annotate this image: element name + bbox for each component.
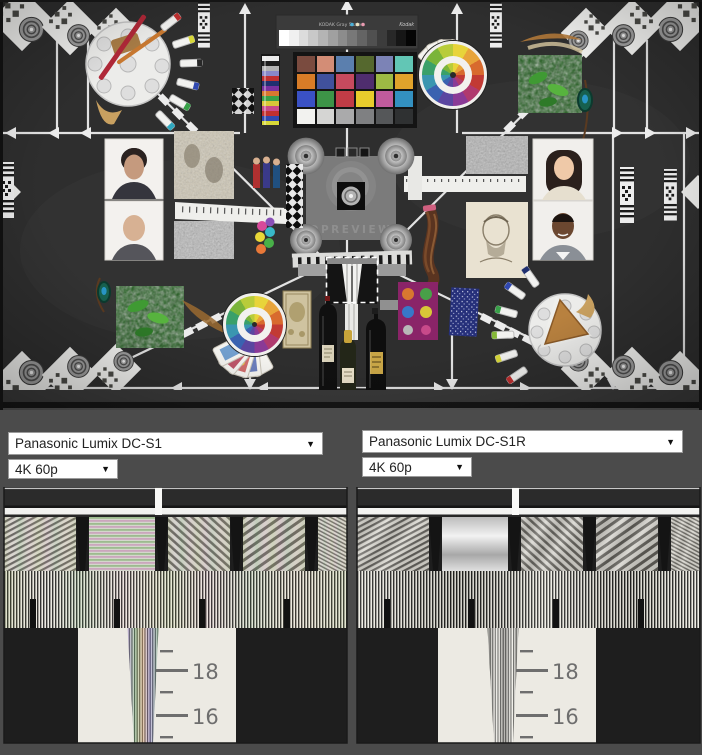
- dropdown-arrow-icon: ▼: [666, 437, 675, 447]
- color-patch: [356, 74, 374, 90]
- camera-select-right[interactable]: Panasonic Lumix DC-S1R ▼: [362, 430, 683, 453]
- color-patch: [336, 74, 354, 90]
- color-patch: [356, 56, 374, 72]
- color-patch: [356, 109, 374, 125]
- wedge-label-18-left: 18: [192, 660, 219, 684]
- color-patch: [376, 74, 394, 90]
- color-patch: [297, 74, 315, 90]
- color-patch: [395, 56, 413, 72]
- studio-scene-image[interactable]: KODAK Gray Scale Kodak: [0, 0, 702, 410]
- color-patch: [376, 109, 394, 125]
- color-patch: [297, 91, 315, 107]
- color-patch: [317, 91, 335, 107]
- color-patch: [336, 56, 354, 72]
- color-patch: [317, 74, 335, 90]
- gray-step: [387, 30, 397, 46]
- mode-select-left[interactable]: 4K 60p ▼: [8, 459, 118, 479]
- color-patch: [376, 91, 394, 107]
- color-patch: [317, 109, 335, 125]
- color-checker-chart: [293, 52, 417, 128]
- camera-select-right-value: Panasonic Lumix DC-S1R: [369, 434, 526, 449]
- wedge-label-16-right: 16: [552, 705, 579, 729]
- gray-step: [338, 30, 348, 46]
- color-patch: [317, 56, 335, 72]
- color-patch: [297, 56, 315, 72]
- crop-image-right[interactable]: 18 16: [357, 487, 700, 743]
- color-wheel-bottom: [223, 293, 286, 356]
- color-patch: [376, 56, 394, 72]
- mode-select-right-value: 4K 60p: [369, 460, 412, 475]
- comparison-crops: 18 16 18 16: [0, 487, 702, 750]
- gray-step: [299, 30, 309, 46]
- wedge-label-18-right: 18: [552, 660, 579, 684]
- gray-step: [367, 30, 377, 46]
- gray-step: [377, 30, 387, 46]
- mode-select-right[interactable]: 4K 60p ▼: [362, 457, 472, 477]
- color-patch: [297, 109, 315, 125]
- kodak-gray-steps: [279, 30, 416, 46]
- color-patch: [395, 91, 413, 107]
- gray-step: [328, 30, 338, 46]
- wedge-label-16-left: 16: [192, 705, 219, 729]
- crop-image-left[interactable]: 18 16: [4, 487, 347, 743]
- camera-select-left-value: Panasonic Lumix DC-S1: [15, 436, 162, 451]
- gray-step: [396, 30, 406, 46]
- dropdown-arrow-icon: ▼: [306, 439, 315, 449]
- gray-step: [357, 30, 367, 46]
- dropdown-arrow-icon: ▼: [101, 464, 110, 474]
- color-patch: [356, 91, 374, 107]
- gray-step: [347, 30, 357, 46]
- gray-step: [279, 30, 289, 46]
- color-wheel-top: [419, 41, 487, 109]
- color-patch: [336, 109, 354, 125]
- color-patch: [395, 74, 413, 90]
- gray-step: [318, 30, 328, 46]
- gray-step: [406, 30, 416, 46]
- mode-select-left-value: 4K 60p: [15, 462, 58, 477]
- color-patch: [336, 91, 354, 107]
- camera-select-left[interactable]: Panasonic Lumix DC-S1 ▼: [8, 432, 323, 455]
- color-patch: [395, 109, 413, 125]
- dropdown-arrow-icon: ▼: [455, 462, 464, 472]
- gray-step: [308, 30, 318, 46]
- gray-step: [289, 30, 299, 46]
